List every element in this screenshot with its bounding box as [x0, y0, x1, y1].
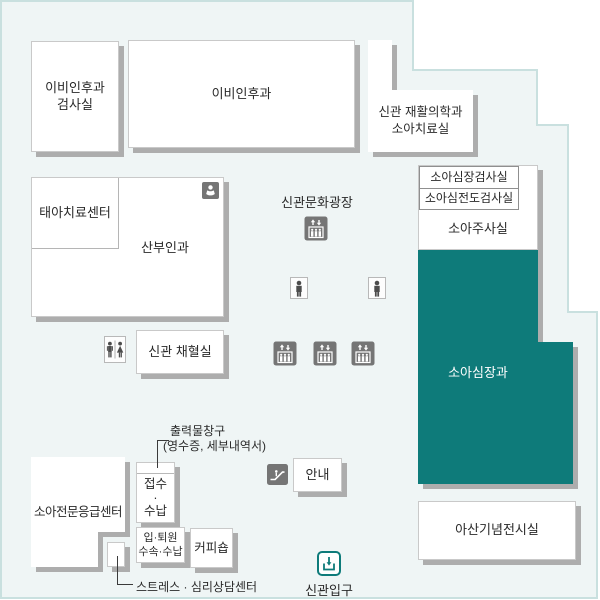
room-heart-exam: 소아심장검사실 소아심전도검사실	[419, 166, 519, 210]
room-info-desk-label: 안내	[306, 467, 330, 484]
room-obgyn-label: 산부인과	[112, 240, 218, 257]
room-rehab-label2: 소아치료실	[392, 121, 450, 138]
room-admission-label2: 수속·수납	[138, 545, 182, 559]
room-cardiology: 소아심장과	[418, 250, 573, 484]
room-pediatric-er-label: 소아전문응급센터	[31, 501, 125, 520]
room-ent-label: 이비인후과	[212, 86, 272, 103]
room-injection-label: 소아주사실	[419, 221, 537, 238]
floor-map: 이비인후과 검사실 이비인후과 신관 재활의학과 소아치료실 태아치료센터 산부…	[0, 0, 600, 600]
elevator-icon	[304, 216, 328, 241]
room-blood-draw: 신관 채혈실	[136, 330, 224, 374]
elevator-icon	[313, 341, 337, 366]
room-ent-exam-label1: 이비인후과	[45, 80, 105, 97]
baby-care-icon	[202, 182, 219, 199]
escalator-icon	[267, 464, 288, 485]
room-reception-label2: 수납	[144, 505, 167, 519]
restroom-icon	[104, 336, 126, 363]
room-stress-center	[107, 542, 125, 567]
room-blood-draw-label: 신관 채혈실	[148, 344, 211, 361]
room-cardiology-body: 소아심장과	[418, 250, 573, 484]
stress-center-callout-line	[117, 584, 133, 585]
entrance-label: 신관입구	[295, 580, 363, 599]
room-cardiology-label: 소아심장과	[418, 362, 538, 381]
room-coffee-shop: 커피숍	[190, 528, 233, 568]
elevator-icon	[351, 341, 375, 366]
room-rehab: 신관 재활의학과 소아치료실	[368, 40, 473, 152]
print-counter-callout-line	[157, 440, 158, 468]
print-counter-label: 출력물창구 (영수증, 세부내역서)	[163, 424, 266, 454]
room-coffee-shop-label: 커피숍	[194, 540, 229, 556]
room-ent-exam: 이비인후과 검사실	[31, 41, 119, 152]
room-reception-dot: ·	[153, 492, 157, 506]
person-icon	[290, 277, 308, 299]
room-rehab-label1: 신관 재활의학과	[379, 104, 463, 121]
entrance-icon	[317, 551, 341, 576]
person-icon	[368, 277, 386, 299]
room-pediatric-column: 소아심장검사실 소아심전도검사실 소아주사실	[418, 165, 538, 250]
room-obgyn: 태아치료센터 산부인과	[31, 177, 224, 317]
room-fetal-center: 태아치료센터	[32, 178, 119, 249]
stress-center-callout-line	[117, 556, 118, 585]
room-ecg-exam-label: 소아심전도검사실	[420, 188, 518, 209]
room-rehab-body: 신관 재활의학과 소아치료실	[368, 40, 473, 152]
room-admission: 입·퇴원 수속·수납	[136, 527, 185, 563]
plaza-label: 신관문화광장	[277, 192, 357, 211]
room-heart-exam-label1: 소아심장검사실	[420, 167, 518, 188]
room-reception: 접수 · 수납	[136, 462, 175, 523]
room-fetal-center-label: 태아치료센터	[39, 205, 111, 222]
elevator-icon	[273, 341, 297, 366]
room-memorial: 아산기념전시실	[418, 501, 576, 560]
print-counter-window	[137, 463, 174, 474]
room-admission-label1: 입·퇴원	[143, 531, 177, 545]
stress-center-label: 스트레스 · 심리상담센터	[136, 578, 257, 595]
room-memorial-label: 아산기념전시실	[455, 522, 539, 539]
room-ent: 이비인후과	[128, 40, 355, 148]
room-ent-exam-label2: 검사실	[57, 97, 93, 114]
room-info-desk: 안내	[293, 458, 342, 492]
room-reception-label1: 접수	[144, 478, 167, 492]
